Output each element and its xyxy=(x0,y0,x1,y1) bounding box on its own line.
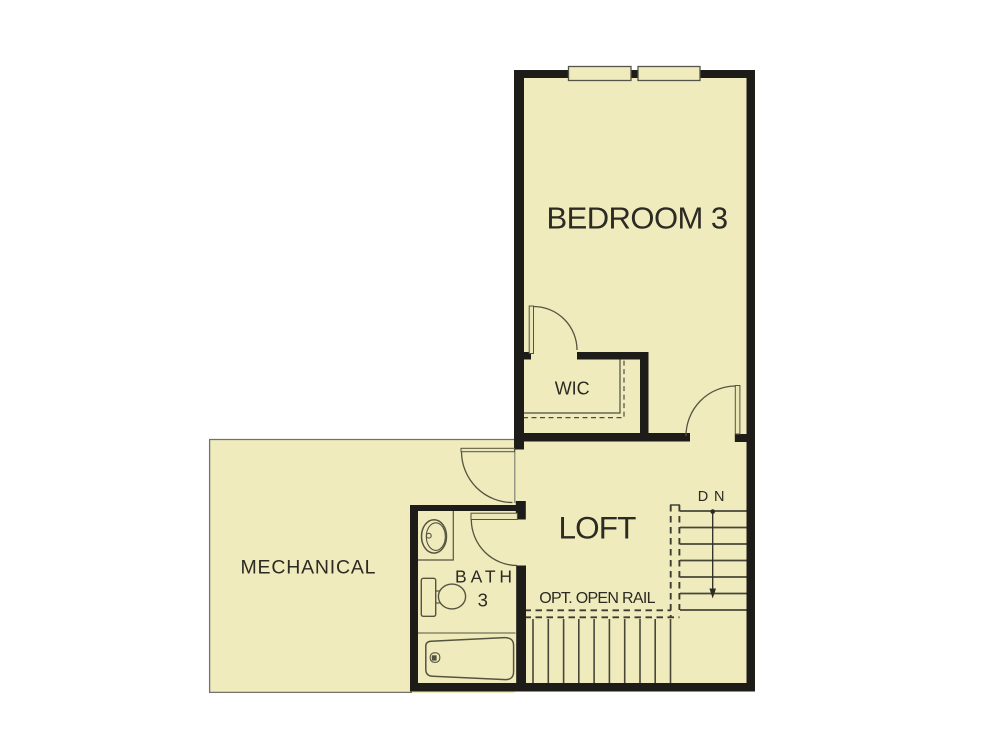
svg-text:MECHANICAL: MECHANICAL xyxy=(240,557,376,579)
svg-text:D: D xyxy=(698,489,708,505)
svg-text:BEDROOM 3: BEDROOM 3 xyxy=(546,201,727,236)
svg-text:WIC: WIC xyxy=(555,379,590,399)
svg-text:BATH: BATH xyxy=(455,567,516,587)
svg-text:3: 3 xyxy=(478,590,488,611)
svg-text:LOFT: LOFT xyxy=(559,509,637,545)
svg-text:OPT. OPEN RAIL: OPT. OPEN RAIL xyxy=(539,590,655,607)
svg-text:N: N xyxy=(714,489,724,505)
